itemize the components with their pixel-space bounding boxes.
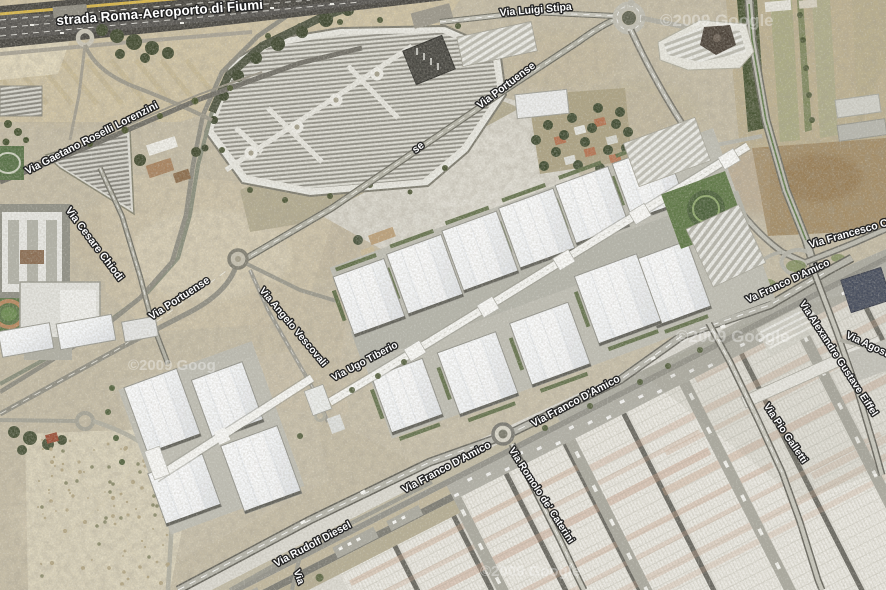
svg-text:©2009 Google: ©2009 Google xyxy=(676,327,790,346)
svg-text:©2009 Goog: ©2009 Goog xyxy=(128,357,216,374)
svg-text:©2009 Google: ©2009 Google xyxy=(480,563,580,580)
svg-text:©2009 Google: ©2009 Google xyxy=(660,11,774,30)
